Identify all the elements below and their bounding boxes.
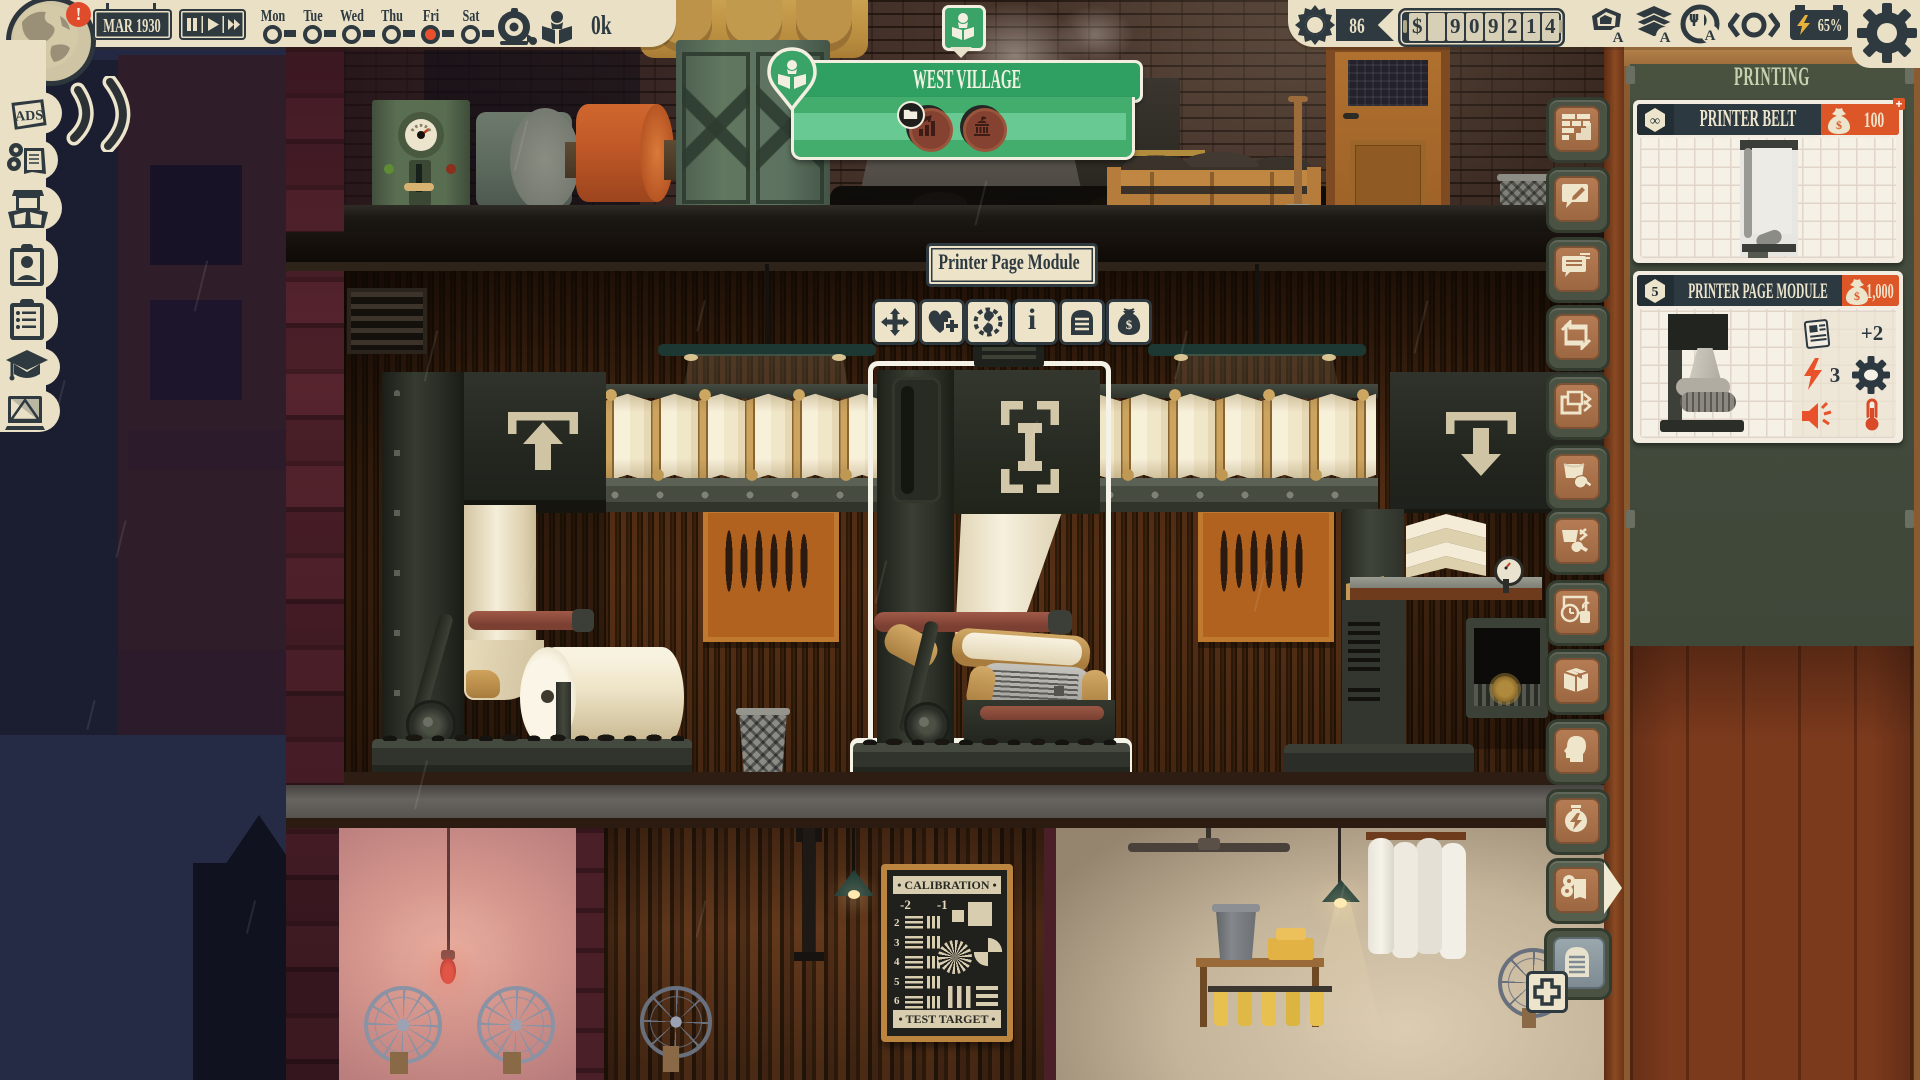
svg-text:$: $ — [1126, 317, 1133, 332]
svg-text:A: A — [1613, 30, 1624, 46]
svg-text:ADS: ADS — [15, 108, 44, 124]
svg-text:∞: ∞ — [1650, 114, 1660, 129]
svg-text:$: $ — [1854, 289, 1860, 303]
svg-text:A: A — [1660, 30, 1671, 46]
svg-text:A: A — [1705, 28, 1716, 44]
svg-text:$: $ — [1836, 118, 1842, 132]
svg-text:5: 5 — [1652, 285, 1659, 300]
